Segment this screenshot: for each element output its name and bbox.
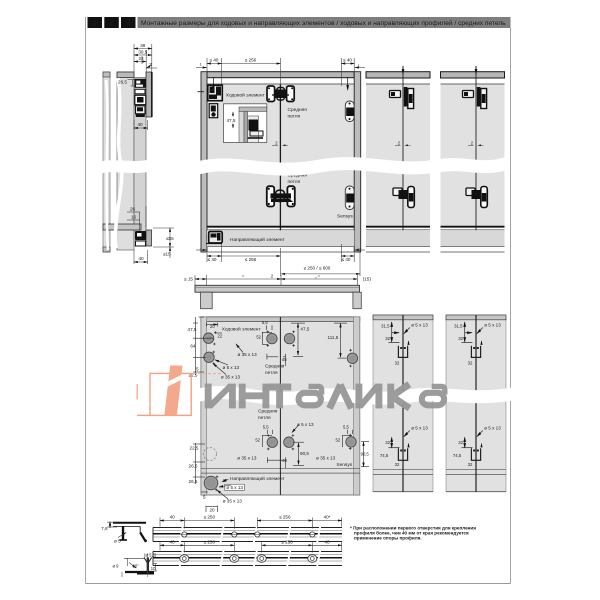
svg-text:48: 48 — [282, 357, 287, 362]
svg-text:26,5: 26,5 — [189, 464, 198, 469]
svg-text:ø 9: ø 9 — [112, 563, 119, 568]
svg-text:ø 35 x 13: ø 35 x 13 — [237, 455, 257, 460]
svg-text:52: 52 — [336, 437, 341, 442]
svg-text:Sensys: Sensys — [337, 214, 353, 220]
svg-text:петля: петля — [288, 180, 301, 185]
svg-text:31,5: 31,5 — [454, 324, 463, 329]
svg-text:=: = — [242, 274, 245, 279]
svg-text:40: 40 — [137, 122, 143, 127]
svg-text:петля: петля — [265, 371, 278, 376]
svg-text:10: 10 — [151, 566, 156, 571]
svg-text:7,6: 7,6 — [101, 526, 108, 531]
svg-text:111,5: 111,5 — [327, 335, 338, 340]
svg-text:Ходовой элемент: Ходовой элемент — [226, 92, 266, 99]
svg-text:Направляющий элемент: Направляющий элемент — [230, 236, 286, 243]
svg-text:5,5: 5,5 — [262, 320, 268, 325]
svg-text:Средняя: Средняя — [265, 363, 285, 369]
svg-text:≤ 40: ≤ 40 — [342, 257, 351, 262]
svg-text:≤ 15: ≤ 15 — [184, 277, 193, 282]
svg-text:2: 2 — [109, 19, 114, 28]
svg-text:38: 38 — [140, 43, 146, 48]
svg-text:22,5: 22,5 — [190, 445, 199, 450]
svg-text:5: 5 — [203, 494, 206, 499]
svg-text:32: 32 — [468, 361, 473, 366]
svg-text:5,5: 5,5 — [343, 425, 349, 430]
svg-text:ø 5 x 13: ø 5 x 13 — [411, 322, 428, 327]
svg-text:Монтажные размеры для ходовых: Монтажные размеры для ходовых и направля… — [141, 19, 506, 27]
svg-text:ø 5 x 13: ø 5 x 13 — [226, 485, 243, 490]
svg-text:74,5: 74,5 — [380, 453, 389, 458]
svg-text:≤ 40: ≤ 40 — [343, 58, 352, 63]
svg-text:≤55: ≤55 — [166, 236, 174, 241]
svg-text:ø 5 x 13: ø 5 x 13 — [297, 422, 314, 427]
svg-text:52: 52 — [256, 334, 261, 339]
svg-text:2: 2 — [149, 62, 152, 67]
svg-text:32: 32 — [458, 336, 463, 341]
svg-text:16: 16 — [131, 215, 137, 220]
svg-text:90°: 90° — [133, 564, 140, 569]
svg-text:40: 40 — [324, 540, 330, 545]
svg-text:ø 35 x 13: ø 35 x 13 — [223, 499, 243, 504]
svg-text:ø 5: ø 5 — [114, 538, 121, 543]
svg-text:26,5: 26,5 — [189, 479, 198, 484]
svg-text:32: 32 — [395, 361, 400, 366]
svg-text:(15): (15) — [363, 277, 372, 282]
svg-text:Sensys: Sensys — [336, 462, 352, 468]
svg-text:ø 5 x 13: ø 5 x 13 — [484, 426, 501, 431]
svg-text:3: 3 — [126, 19, 131, 28]
svg-text:Направляющий элемент: Направляющий элемент — [230, 475, 286, 482]
svg-text:(ø 5,6): (ø 5,6) — [144, 553, 157, 558]
svg-text:32: 32 — [468, 462, 473, 467]
svg-text:32: 32 — [385, 336, 390, 341]
svg-text:применение опоры профиля.: применение опоры профиля. — [354, 535, 422, 541]
svg-text:31,5: 31,5 — [381, 324, 390, 329]
svg-text:1: 1 — [92, 19, 97, 28]
svg-text:30,5: 30,5 — [138, 50, 147, 55]
svg-text:≤ 256: ≤ 256 — [245, 58, 257, 63]
svg-text:52: 52 — [255, 437, 260, 442]
svg-text:=: = — [318, 274, 321, 279]
svg-text:5: 5 — [196, 366, 199, 371]
svg-text:40: 40 — [170, 515, 176, 520]
svg-text:петля: петля — [258, 416, 271, 421]
svg-text:47,5: 47,5 — [300, 326, 309, 331]
svg-text:90,5: 90,5 — [300, 451, 309, 456]
svg-text:47,5: 47,5 — [227, 118, 236, 123]
svg-text:Средняя: Средняя — [288, 107, 308, 113]
svg-text:40: 40 — [170, 540, 176, 545]
svg-text:ø 5 x 13: ø 5 x 13 — [411, 426, 428, 431]
svg-text:64: 64 — [190, 344, 196, 349]
svg-text:90,5: 90,5 — [361, 452, 370, 457]
svg-text:ø 35 x 13: ø 35 x 13 — [316, 455, 336, 460]
svg-text:≥15: ≥15 — [163, 252, 171, 257]
svg-text:5,5: 5,5 — [263, 425, 269, 430]
svg-text:26: 26 — [130, 207, 136, 212]
svg-text:≤ 250: ≤ 250 — [204, 540, 216, 545]
svg-text:≤ 256: ≤ 256 — [245, 257, 257, 262]
svg-text:Ходовой элемент: Ходовой элемент — [222, 326, 262, 333]
svg-text:74,5: 74,5 — [453, 453, 462, 458]
svg-text:23: 23 — [138, 56, 144, 61]
svg-text:32: 32 — [395, 462, 400, 467]
svg-text:ø 35 x 13: ø 35 x 13 — [238, 352, 258, 357]
svg-text:ø 35 x 13: ø 35 x 13 — [221, 374, 241, 379]
svg-text:петля: петля — [288, 115, 301, 120]
svg-text:ø 5 x 13: ø 5 x 13 — [223, 365, 240, 370]
svg-text:40: 40 — [138, 256, 144, 261]
svg-text:≤ 256: ≤ 256 — [281, 540, 293, 545]
svg-text:≥ 250 / ≤ 600: ≥ 250 / ≤ 600 — [304, 266, 331, 271]
svg-text:≤ 40: ≤ 40 — [208, 257, 217, 262]
svg-text:26,5: 26,5 — [118, 79, 127, 84]
svg-text:≤ 40: ≤ 40 — [210, 58, 219, 63]
svg-text:32: 32 — [385, 440, 390, 445]
svg-text:≤ 250: ≤ 250 — [204, 515, 216, 520]
svg-text:20: 20 — [209, 507, 215, 512]
svg-text:Средняя: Средняя — [258, 409, 278, 415]
svg-text:32: 32 — [458, 440, 463, 445]
svg-text:22: 22 — [218, 333, 223, 338]
svg-text:40*: 40* — [324, 515, 331, 520]
svg-text:≤ 256: ≤ 256 — [279, 515, 291, 520]
svg-text:ø 5 x 13: ø 5 x 13 — [484, 322, 501, 327]
